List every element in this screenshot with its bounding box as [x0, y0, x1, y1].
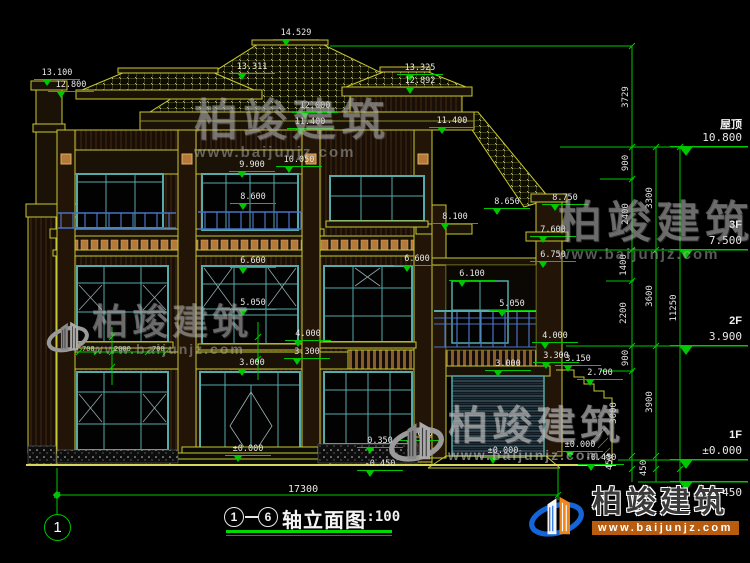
- spot-elevation-marker: ±0.000: [557, 441, 603, 458]
- spot-elevation-marker: 8.100: [432, 213, 478, 230]
- spot-elevation-marker: 9.900: [229, 161, 275, 178]
- spot-elevation-marker: 3.150: [555, 355, 601, 372]
- spot-elevation-marker: 3.300: [533, 352, 579, 369]
- spot-elevation-marker: 6.600: [230, 257, 276, 274]
- title-underline-thin: [226, 535, 392, 536]
- floor-flag-triangle: [680, 460, 692, 468]
- spot-elevation-marker: 3.000: [485, 360, 531, 377]
- spot-elevation-marker: ±0.000: [225, 445, 271, 462]
- axis-circle-end: 6: [258, 507, 278, 527]
- spot-elevation-marker: 6.750: [530, 251, 576, 268]
- spot-elevation-marker: 14.529: [273, 29, 319, 46]
- spot-elevation-marker: 4.000: [285, 330, 331, 347]
- floor-flag-triangle: [680, 147, 692, 155]
- spot-elevation-marker: 6.100: [449, 270, 495, 287]
- brand-name: 柏竣建筑: [592, 486, 739, 520]
- spot-elevation-marker: 11.400: [429, 117, 475, 134]
- window-sub-dimension: 700: [152, 345, 165, 353]
- spot-elevation-marker: 10.050: [276, 156, 322, 173]
- spot-elevation-marker: 4.000: [532, 332, 578, 349]
- title-dash: [245, 516, 258, 518]
- axis-circle-start: 1: [224, 507, 244, 527]
- spot-elevation-marker: 8.650: [484, 198, 530, 215]
- floor-flag-triangle: [680, 346, 692, 354]
- floor-flag-triangle: [680, 250, 692, 258]
- axis-bubble-1: 1: [44, 514, 71, 541]
- spot-elevation-marker: 5.050: [489, 300, 535, 317]
- chain-dimension: 3600: [645, 266, 655, 326]
- floor-elevation-value: 7.500: [656, 234, 742, 247]
- chain-dimension: 11250: [669, 278, 679, 338]
- floor-elevation-value: ±0.000: [656, 444, 742, 457]
- spot-elevation-marker: 5.050: [230, 299, 276, 316]
- spot-elevation-marker: 12.892: [397, 77, 443, 94]
- window-sub-dimension: 2000: [114, 345, 131, 353]
- spot-elevation-marker: 13.325: [397, 64, 443, 81]
- floor-label: 3F: [664, 219, 742, 231]
- spot-elevation-marker: -0.450: [357, 460, 403, 477]
- spot-elevation-marker: 0.350: [357, 437, 403, 454]
- spot-elevation-marker: 13.311: [229, 63, 275, 80]
- spot-elevation-marker: 0.600: [397, 430, 443, 447]
- drawing-scale: 1:100: [358, 509, 400, 525]
- spot-elevation-marker: ±0.000: [480, 447, 526, 464]
- spot-elevation-marker: 11.400: [287, 118, 333, 135]
- spot-elevation-marker: 6.600: [394, 255, 440, 272]
- spot-elevation-marker: 12.000: [292, 102, 338, 119]
- spot-elevation-marker: 3.300: [284, 348, 330, 365]
- floor-label: 1F: [664, 429, 742, 441]
- annotation-layer: 14.52913.10012.80013.31113.32512.89212.0…: [0, 0, 750, 563]
- overall-width-dim: 17300: [288, 484, 318, 495]
- chain-dimension: 3729: [621, 67, 631, 127]
- drawing-title: 轴立面图: [282, 504, 366, 533]
- floor-label: 2F: [664, 315, 742, 327]
- brand-url: www.baijunjz.com: [592, 521, 739, 535]
- spot-elevation-marker: 12.800: [48, 81, 94, 98]
- floor-elevation-value: 10.800: [656, 131, 742, 144]
- chain-dimension: 450: [605, 432, 615, 492]
- spot-elevation-marker: -0.450: [578, 454, 624, 471]
- spot-elevation-marker: 3.000: [229, 359, 275, 376]
- chain-dimension: 3900: [645, 372, 655, 432]
- cad-canvas: 14.52913.10012.80013.31113.32512.89212.0…: [0, 0, 750, 563]
- brand-logo-block: 柏竣建筑 www.baijunjz.com: [528, 486, 739, 542]
- spot-elevation-marker: 8.600: [230, 193, 276, 210]
- chain-dimension: 900: [621, 328, 631, 388]
- spot-elevation-marker: 13.100: [34, 69, 80, 86]
- floor-label: 屋顶: [664, 116, 742, 132]
- brand-logo-icon: [528, 486, 588, 542]
- window-sub-dimension: 700: [82, 345, 95, 353]
- title-underline: [226, 530, 392, 533]
- spot-elevation-marker: 7.600: [530, 226, 576, 243]
- floor-elevation-value: 3.900: [656, 330, 742, 343]
- spot-elevation-marker: 8.750: [542, 194, 588, 211]
- chain-dimension: 3300: [645, 168, 655, 228]
